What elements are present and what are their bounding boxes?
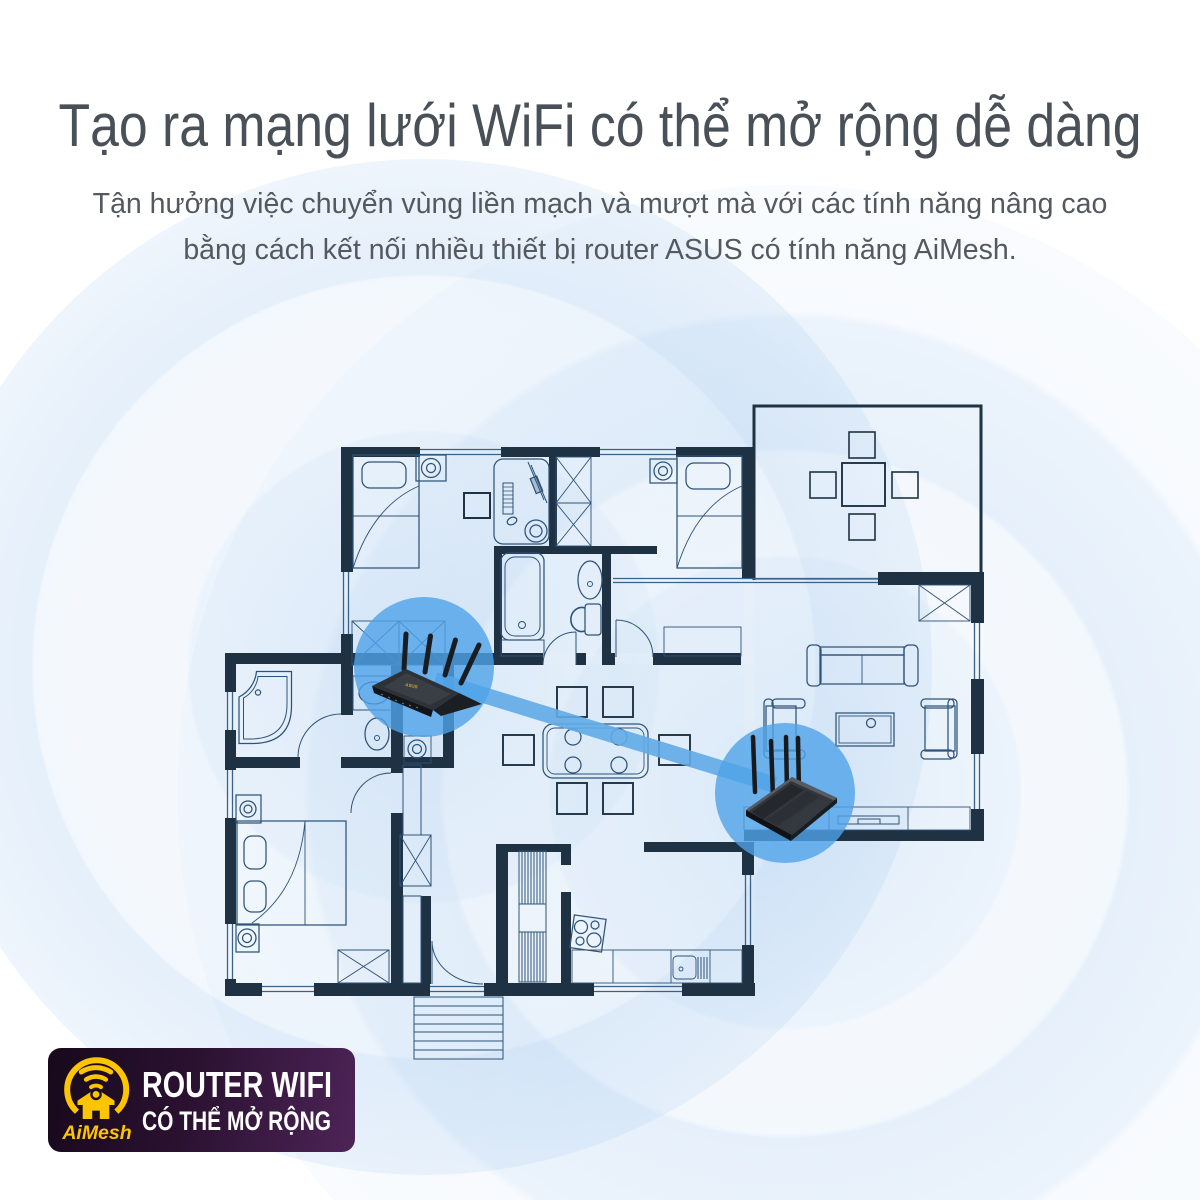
svg-text:AiMesh: AiMesh xyxy=(61,1122,131,1144)
svg-text:CÓ THỂ MỞ RỘNG: CÓ THỂ MỞ RỘNG xyxy=(142,1104,331,1136)
svg-text:ROUTER WIFI: ROUTER WIFI xyxy=(142,1064,332,1105)
svg-text:Tạo ra mạng lưới WiFi có thể m: Tạo ra mạng lưới WiFi có thể mở rộng dễ … xyxy=(59,92,1142,159)
